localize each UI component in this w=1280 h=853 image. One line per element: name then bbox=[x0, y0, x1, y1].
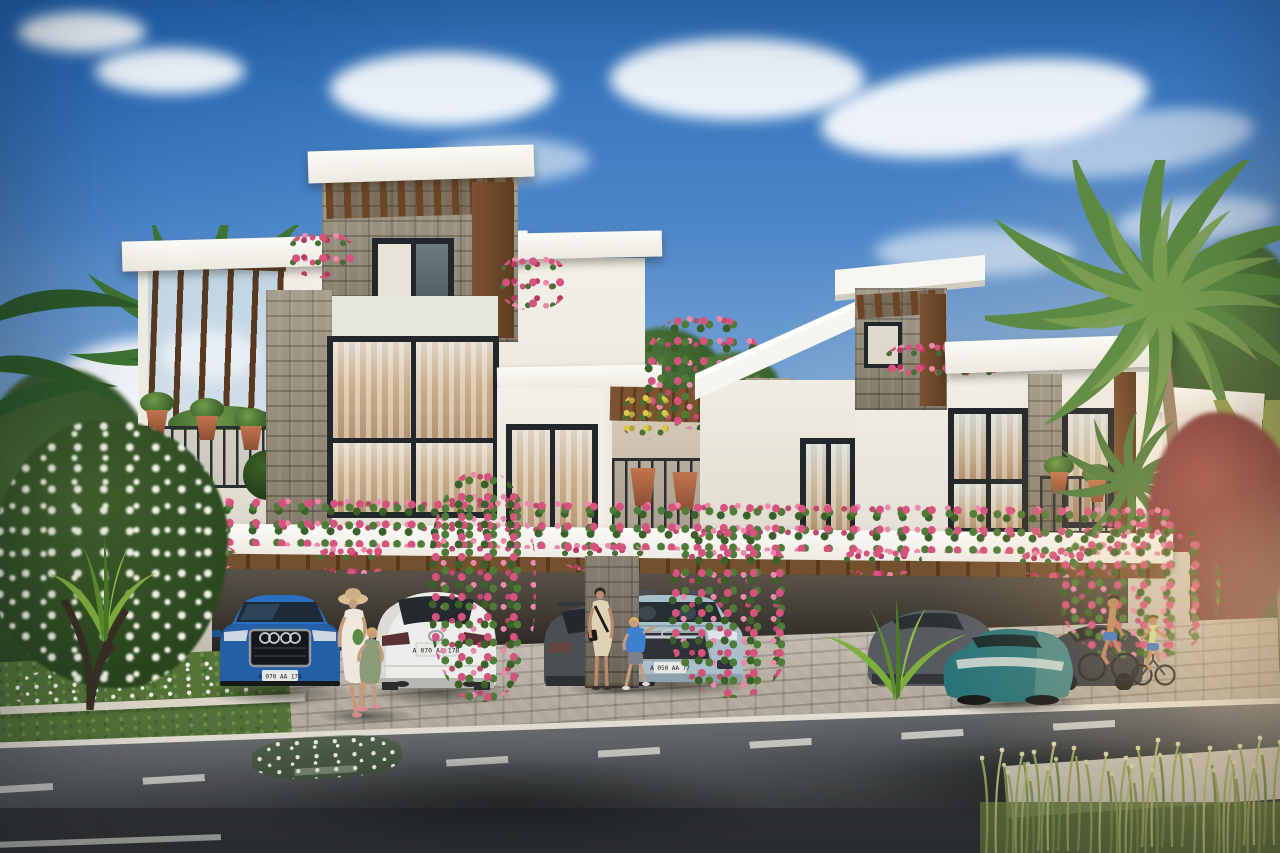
cloud bbox=[330, 52, 555, 126]
audi-license-plate: A 070 AA 178 bbox=[258, 674, 302, 681]
wall-strip bbox=[332, 296, 498, 340]
tower-flower-box bbox=[498, 254, 568, 310]
person-girl-cyclist bbox=[1128, 608, 1176, 688]
rendered-scene: A 070 AA 178 A 070 AA 178 A 05 bbox=[0, 0, 1280, 853]
window-pane bbox=[333, 342, 411, 438]
yellow-flowers bbox=[620, 392, 674, 440]
window-pane bbox=[416, 342, 494, 438]
bougainvillea-bush bbox=[668, 526, 796, 698]
tower-flower-box bbox=[288, 230, 354, 278]
cloud bbox=[610, 38, 865, 120]
bougainvillea-climber bbox=[428, 470, 536, 702]
garland-drip bbox=[842, 546, 922, 576]
agave-cluster-right bbox=[818, 588, 974, 704]
window-pane bbox=[954, 414, 986, 479]
cloud bbox=[95, 48, 245, 94]
vehicle-audi-suv: A 070 AA 178 bbox=[210, 586, 350, 698]
person-boy-blue bbox=[616, 616, 658, 694]
garland-drip bbox=[316, 544, 394, 574]
foreground-grass bbox=[980, 732, 1280, 853]
agave-cluster-left bbox=[46, 522, 162, 648]
cloud bbox=[18, 12, 146, 52]
